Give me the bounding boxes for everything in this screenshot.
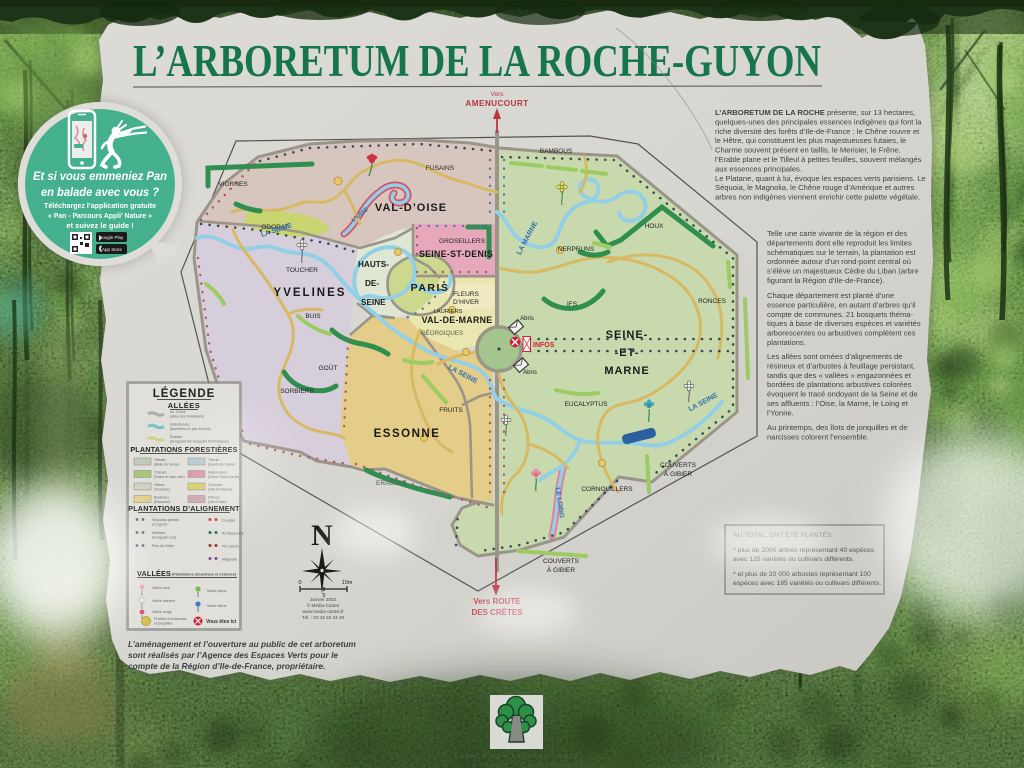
svg-text:LÉGENDE: LÉGENDE [153,387,216,400]
svg-text:Charme souvent présent en tail: Charme souvent présent en taillis, le Me… [715,146,901,155]
svg-text:ESSONNE: ESSONNE [374,428,441,440]
svg-text:riche diversité des forêts d’I: riche diversité des forêts d’Ile-de-Fran… [715,127,920,136]
svg-text:SORBIERS: SORBIERS [280,388,314,395]
svg-text:(Seine et vals oise): (Seine et vals oise) [154,475,185,479]
svg-text:Chênes: Chênes [154,471,167,475]
svg-text:-ET-: -ET- [615,347,640,359]
svg-text:INFOS: INFOS [533,342,555,349]
svg-text:essence particulière, en autan: essence particulière, en autant d’arbres… [767,300,916,309]
svg-text:Ifs Weymouth: Ifs Weymouth [222,532,244,536]
svg-text:Google Play: Google Play [99,235,124,240]
svg-text:LAURIERS: LAURIERS [434,309,463,315]
svg-text:EUCALYPTUS: EUCALYPTUS [565,401,609,408]
svg-text:figurant la Région d’Ile-de-Fr: figurant la Région d’Ile-de-France). [767,276,884,285]
svg-text:0: 0 [298,580,301,586]
svg-text:Écartés: Écartés [170,434,182,439]
svg-text:NERPRUNS: NERPRUNS [558,246,595,253]
svg-text:(bosquets sud): (bosquets sud) [152,536,176,540]
svg-text:VAL-DE-MARNE: VAL-DE-MARNE [422,315,493,325]
svg-text:Prairies d’hortensias: Prairies d’hortensias [154,617,187,621]
svg-text:Abris: Abris [523,370,537,376]
svg-text:Vallée rouge: Vallée rouge [152,610,172,614]
svg-text:© Média-Cartes: © Média-Cartes [307,602,340,608]
svg-text:FLEURS: FLEURS [453,291,479,298]
svg-text:Vallée bleue: Vallée bleue [207,604,227,608]
svg-text:compte de la Région d’Ile-de-F: compte de la Région d’Ile-de-France, pro… [128,661,325,671]
svg-text:ERABLES: ERABLES [376,480,407,487]
svg-text:L’aménagement et l’ouverture a: L’aménagement et l’ouverture au public d… [128,639,356,649]
svg-text:bordées de plantations arbusti: bordées de plantations arbustives coloré… [767,380,912,389]
svg-text:L’ARBORETUM DE LA ROCHE-GUYON: L’ARBORETUM DE LA ROCHE-GUYON [133,36,821,86]
svg-text:arborescentes ou arbustives co: arborescentes ou arbustives complètent c… [767,329,916,338]
svg-text:l’Erable plane et le Tilleul à: l’Erable plane et le Tilleul à petites f… [715,155,922,164]
svg-text:TOUCHER: TOUCHER [286,267,318,274]
svg-text:BUIS: BUIS [305,313,321,320]
svg-text:GÉORGIQUES: GÉORGIQUES [421,330,463,337]
svg-text:Janvier 2002: Janvier 2002 [310,597,337,602]
svg-text:À GIBIER: À GIBIER [547,565,575,574]
svg-text:Hêtraie: Hêtraie [154,458,166,462]
svg-text:Téléchargez l’application grat: Téléchargez l’application gratuite [44,201,156,210]
svg-text:DE LA RÉGION D’ILE DE FRANCE: DE LA RÉGION D’ILE DE FRANCE [454,762,579,768]
svg-text:Chaque département est planté: Chaque département est planté d’une [767,291,894,300]
svg-text:(allée des fontainiers): (allée des fontainiers) [170,415,204,419]
svg-text:PARIS: PARIS [411,282,450,294]
svg-text:D’HIVER: D’HIVER [453,299,479,306]
svg-text:FUSAINS: FUSAINS [426,165,455,172]
svg-text:N: N [311,519,333,552]
svg-text:GROSEILLERS: GROSEILLERS [439,238,486,245]
svg-text:Magnolia: Magnolia [222,558,237,562]
svg-text:Pins du Vésin: Pins du Vésin [152,544,174,548]
svg-text:Le Platane, quant à lui, évoqu: Le Platane, quant à lui, évoque les espa… [715,174,926,183]
svg-text:le Hêtre, qui constituent les: le Hêtre, qui constituent les plus majes… [715,136,906,145]
svg-text:YVELINES: YVELINES [274,287,347,299]
svg-text:Les allées sont ornées d’align: Les allées sont ornées d’alignements de [767,352,903,361]
svg-text:Av. Cèdre: Av. Cèdre [170,410,186,414]
svg-text:« Pan - Parcours Appli’ Nature: « Pan - Parcours Appli’ Nature » [48,211,152,220]
svg-text:Telle une carte vivante de la: Telle une carte vivante de la région et … [767,229,907,238]
svg-text:Séquoia, le Magnolia, le Chêne: Séquoia, le Magnolia, le Chêne rouge d’A… [715,183,914,192]
svg-text:VAL-D’OISE: VAL-D’OISE [375,202,447,214]
svg-text:DE-: DE- [365,279,379,288]
svg-text:GOÛT: GOÛT [319,363,338,372]
svg-text:ordonnée autour d’un rond-poin: ordonnée autour d’un rond-point central … [767,257,911,266]
svg-text:IFS: IFS [567,301,578,308]
svg-text:Entretenues: Entretenues [170,423,190,427]
svg-text:Au printemps, des îlots de jon: Au printemps, des îlots de jonquilles et… [767,423,908,432]
svg-text:SEINE: SEINE [361,298,386,307]
svg-text:SEINE-: SEINE- [606,329,649,341]
svg-text:BAMBOUS: BAMBOUS [540,148,573,155]
svg-text:en balade avec vous ?: en balade avec vous ? [41,185,159,199]
svg-text:Vallée blanche: Vallée blanche [152,599,175,603]
svg-text:résineux et d’arbustes à feuil: résineux et d’arbustes à feuillage persi… [767,361,915,370]
svg-text:tandis que des « vallées » eng: tandis que des « vallées » engazonnées e… [767,371,912,380]
svg-text:narcisses colorent l’ensemble.: narcisses colorent l’ensemble. [767,432,869,441]
svg-text:Vallée jaune: Vallée jaune [207,589,227,593]
svg-text:Hêtres: Hêtres [154,483,165,487]
svg-text:et jonquilles: et jonquilles [154,622,173,626]
svg-text:évoquent le tracé ondoyant de: évoquent le tracé ondoyant de la Seine e… [767,390,918,399]
svg-text:COUVERTS: COUVERTS [660,462,697,469]
svg-text:FRUITS: FRUITS [439,407,463,414]
svg-text:quelques-unes des principales: quelques-unes des principales essences i… [715,117,922,126]
svg-text:10m: 10m [342,580,353,586]
svg-text:HOUX: HOUX [645,223,664,230]
svg-text:Vous êtes ici: Vous êtes ici [206,619,237,625]
svg-text:AGENCE DES ESPACES VERTS: AGENCE DES ESPACES VERTS [454,754,580,760]
svg-text:SEINE-ST-DENIS: SEINE-ST-DENIS [419,249,493,259]
svg-text:plantations.: plantations. [767,338,806,347]
svg-text:ses affluents : l’Oise, la Mar: ses affluents : l’Oise, la Marne, le Loi… [767,399,909,408]
svg-text:À GIBIER: À GIBIER [664,469,692,478]
svg-text:(Belle du Vexin): (Belle du Vexin) [154,463,179,467]
svg-text:ALLÉES: ALLÉES [168,401,201,410]
svg-text:(Plantations arbustives et col: (Plantations arbustives et colorées) [172,573,237,577]
svg-text:l’Yonne.: l’Yonne. [767,408,794,417]
svg-text:App Store: App Store [102,247,123,252]
svg-text:(Yvelines): (Yvelines) [154,488,170,492]
svg-text:COUVERTS: COUVERTS [543,558,580,565]
svg-text:Vallée rose: Vallée rose [152,586,170,590]
svg-text:schématiques sur le terrain, l: schématiques sur le terrain, la plantati… [767,248,916,257]
svg-text:MARNE: MARNE [604,365,649,377]
svg-text:et Cyprès: et Cyprès [152,523,168,527]
svg-text:Et si vous emmeniez Pan: Et si vous emmeniez Pan [33,169,167,183]
svg-text:arbres non indigènes viennent: arbres non indigènes viennent enrichir c… [715,193,920,202]
svg-text:s’élève un majestueux Cèdre du: s’élève un majestueux Cèdre du Liban (ar… [767,267,919,276]
svg-text:www.media-cartes.fr: www.media-cartes.fr [302,609,344,614]
svg-text:Vers: Vers [490,91,504,98]
svg-text:aux essences principales.: aux essences principales. [715,164,802,173]
svg-text:L’ARBORETUM DE LA ROCHE présen: L’ARBORETUM DE LA ROCHE présente, sur 13… [715,108,915,117]
svg-text:HAUTS-: HAUTS- [358,260,389,269]
svg-text:Pin Laricio: Pin Laricio [222,545,239,549]
svg-text:AMENUCOURT: AMENUCOURT [465,99,528,108]
svg-text:RONCES: RONCES [698,298,726,305]
svg-text:VIORNES: VIORNES [218,181,248,188]
svg-text:Abris: Abris [520,316,534,322]
svg-text:sont réalisés par l’Agence des: sont réalisés par l’Agence des Espaces V… [128,650,338,660]
svg-text:compte de communes. 21 bosquet: compte de communes. 21 bosquets théma- [767,310,914,319]
svg-text:* et plus de 20 000 arbustes r: * et plus de 20 000 arbustes représentan… [733,571,871,578]
svg-text:Mélèzes: Mélèzes [152,531,166,535]
svg-text:espèces avec 185 variétés ou c: espèces avec 185 variétés ou cultivars d… [733,580,881,587]
svg-text:VALLÉES: VALLÉES [137,569,171,578]
svg-text:CORNOUILLERS: CORNOUILLERS [581,486,633,493]
svg-text:Bouleaux: Bouleaux [154,496,169,500]
svg-text:tiques à base de diverses espè: tiques à base de diverses espèces et var… [767,319,921,328]
svg-text:Séquoias géants: Séquoias géants [152,518,179,522]
svg-text:et suivez le guide !: et suivez le guide ! [66,221,134,230]
svg-text:Tél. : 03 42 33 24 48: Tél. : 03 42 33 24 48 [302,615,345,620]
svg-text:départements dont elle reprodu: départements dont elle reproduit les lim… [767,238,912,247]
